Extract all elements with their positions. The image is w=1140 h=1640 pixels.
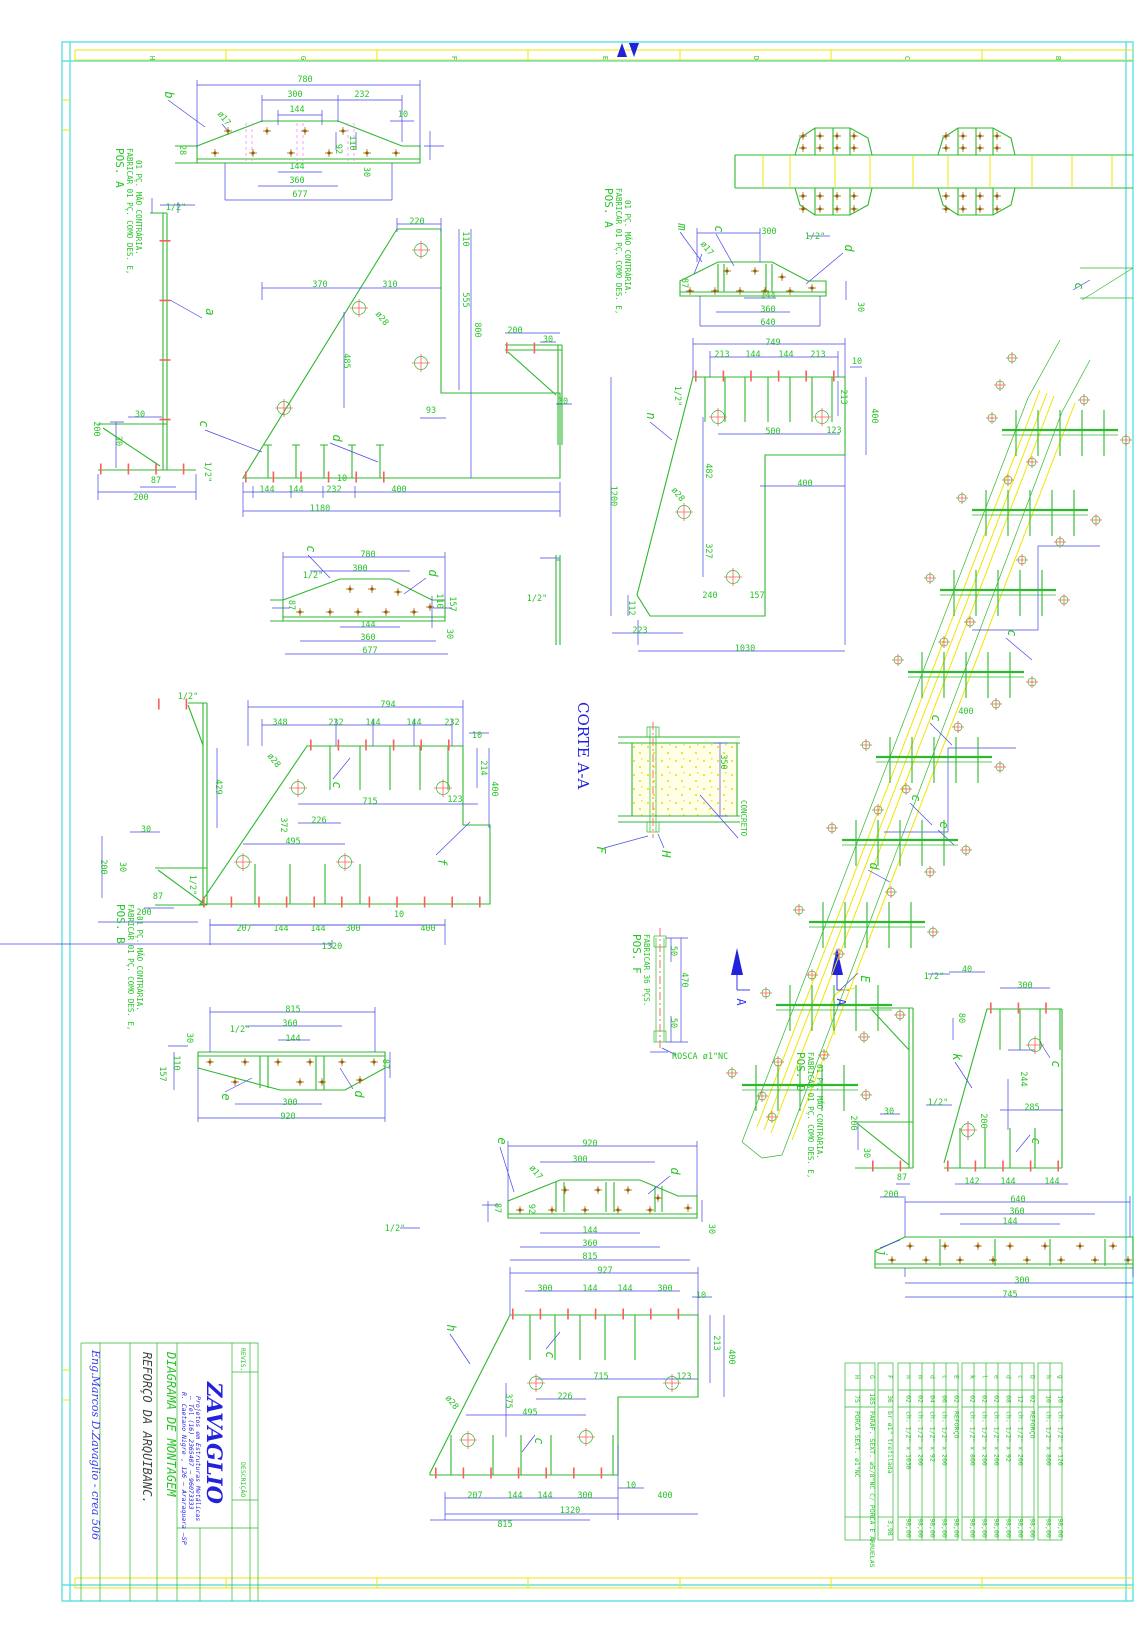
dim-label: 400 — [391, 485, 406, 495]
bolt-icon — [646, 1206, 654, 1214]
dim-label: 213 — [711, 1335, 721, 1350]
part-ref-label: c — [330, 781, 344, 788]
bolt-icon — [516, 1206, 524, 1214]
hole-icon — [709, 408, 727, 426]
table-cell-mark: n — [905, 1375, 913, 1379]
bolt-icon — [976, 192, 984, 200]
dim-label: 30 — [141, 825, 151, 835]
dim-label: 780 — [297, 75, 312, 85]
dim-label: ø28 — [669, 486, 686, 504]
bolt-icon — [296, 1078, 304, 1086]
table-cell-desc: ch. 1/2" x 200 — [993, 1411, 1001, 1466]
dim-label: 715 — [362, 797, 377, 807]
pos-title: POS. B — [114, 904, 127, 944]
dim-label: 360 — [1009, 1207, 1024, 1217]
bolt-icon — [1023, 1256, 1031, 1264]
dim-label: 144 — [289, 162, 304, 172]
dim-label: 144 — [259, 485, 274, 495]
dim-label: ø28 — [265, 752, 282, 770]
bolt-icon — [318, 1078, 326, 1086]
bolt-icon — [249, 149, 257, 157]
dim-label: 1/2" — [166, 203, 186, 213]
table-cell-qty: 36 — [886, 1395, 894, 1403]
bolt-icon — [1124, 1256, 1132, 1264]
dim-label: 1/2" — [527, 594, 547, 604]
hole-icon — [1026, 1036, 1044, 1054]
part-ref-label: f — [435, 858, 449, 866]
dim-label: 360 — [282, 1019, 297, 1029]
dim-label: ø17 — [698, 240, 715, 258]
part-ref-label: c — [712, 225, 726, 232]
bolt-icon — [833, 192, 841, 200]
bolt-icon — [993, 144, 1001, 152]
dim-label: 200 — [883, 1190, 898, 1200]
table-cell-weight: 98,00 — [1005, 1518, 1013, 1538]
dim-label: 200 — [133, 493, 148, 503]
table-cell-qty: 02 — [953, 1395, 961, 1403]
dim-label: ø17 — [527, 1164, 544, 1182]
bolt-icon — [594, 1186, 602, 1194]
bolt-icon — [799, 205, 807, 213]
dim-label: 144 — [360, 620, 375, 630]
pos-title: POS. A — [602, 188, 615, 228]
dim-label: 300 — [345, 924, 360, 934]
part-ref-label: c — [543, 1351, 557, 1358]
dim-label: 213 — [810, 350, 825, 360]
part-ref-label: H — [659, 849, 673, 858]
hole-icon — [459, 1431, 477, 1449]
dim-label: 123 — [447, 795, 462, 805]
dim-label: 110 — [460, 231, 470, 246]
table-cell-weight: 98,00 — [1029, 1518, 1037, 1538]
bolt-icon — [833, 132, 841, 140]
dim-label: 87 — [153, 892, 163, 902]
table-cell-weight: 98,00 — [1045, 1518, 1053, 1538]
bolt-icon — [392, 149, 400, 157]
detail-plate-920 — [400, 1141, 702, 1260]
dim-label: 240 — [702, 591, 717, 601]
part-ref-label: d — [842, 244, 856, 252]
dim-label: 300 — [287, 90, 302, 100]
part-ref-label: e — [495, 1137, 509, 1144]
hole-icon — [724, 568, 742, 586]
pos-note: 01 PÇ. MÃO CONTRÁRIA. — [815, 1064, 824, 1159]
rosca-label: ROSCA ø1"NC — [672, 1052, 728, 1062]
dim-label: 749 — [765, 338, 780, 348]
bolt-icon — [382, 608, 390, 616]
dim-label: 30 — [855, 302, 865, 312]
table-cell-qty: 10 — [1057, 1395, 1065, 1403]
dim-label: 10 — [394, 910, 404, 920]
bolt-icon — [287, 149, 295, 157]
bolt-icon — [959, 205, 967, 213]
dim-label: 93 — [426, 406, 436, 416]
dim-label: 92 — [526, 1204, 536, 1214]
stair-beam — [860, 721, 1006, 795]
part-ref-label: c — [304, 545, 318, 552]
bolt-icon — [614, 1206, 622, 1214]
concreto-label: CONCRETO — [739, 800, 748, 837]
table-cell-qty: 02 — [1029, 1395, 1037, 1403]
dim-label: 640 — [760, 318, 775, 328]
dim-label: 87 — [151, 476, 161, 486]
table-cell-desc: REFORÇO — [953, 1411, 961, 1438]
detail-gusset-n — [611, 338, 866, 651]
table-cell-desc: ch. 1/2" x 200 — [1017, 1411, 1025, 1466]
dim-label: 1/2" — [805, 232, 825, 242]
dim-label: 30 — [184, 1033, 194, 1043]
dim-label: 400 — [797, 479, 812, 489]
bolt-icon — [306, 1058, 314, 1066]
dim-label: 87 — [492, 1203, 502, 1213]
dim-label: 144 — [310, 924, 325, 934]
stair-beam — [793, 886, 939, 960]
table-cell-weight: 3,98 — [886, 1520, 894, 1536]
dim-label: 144 — [273, 924, 288, 934]
dim-label: 40 — [962, 965, 972, 975]
table-cell-qty: 02 — [981, 1395, 989, 1403]
dim-label: 232 — [326, 485, 341, 495]
bolt-icon — [1091, 1256, 1099, 1264]
dim-label: 200 — [507, 326, 522, 336]
dim-label: 10 — [696, 1291, 706, 1301]
bolt-icon — [339, 127, 347, 135]
dim-label: 1180 — [310, 504, 330, 514]
bolt-icon — [426, 603, 434, 611]
dim-label: 745 — [1002, 1290, 1017, 1300]
table-cell-desc: REFORÇO — [1029, 1411, 1037, 1438]
dim-label: 470 — [679, 972, 689, 987]
dim-label: 500 — [765, 427, 780, 437]
bolt-icon — [850, 132, 858, 140]
bolt-icon — [942, 192, 950, 200]
dim-label: 794 — [380, 700, 395, 710]
bolt-icon — [833, 205, 841, 213]
dim-label: 300 — [761, 227, 776, 237]
part-ref-label: d — [668, 1167, 682, 1175]
bolt-icon — [959, 132, 967, 140]
descr-label: DESCRIÇÃO — [239, 1462, 248, 1497]
bolt-icon — [548, 1206, 556, 1214]
bolt-icon — [799, 192, 807, 200]
bolt-icon — [326, 608, 334, 616]
dim-label: 30 — [444, 629, 454, 639]
bolt-icon — [206, 1058, 214, 1066]
dim-label: 780 — [360, 550, 375, 560]
detail-gusset-cd — [205, 218, 560, 517]
part-ref-label: d — [330, 434, 344, 442]
bolt-icon — [370, 1058, 378, 1066]
detail-bottom-right — [855, 972, 1133, 1297]
bolt-icon — [778, 273, 786, 281]
bolt-icon — [1076, 1242, 1084, 1250]
parts-table: H75PORCA SEXT. ø1"NCG185PARAF. SEXT. ø5/… — [845, 1363, 876, 1568]
dim-label: 815 — [497, 1520, 512, 1530]
dim-label: ø28 — [443, 1394, 460, 1412]
grid-letter: F — [450, 56, 458, 60]
dim-label: 244 — [1018, 1071, 1028, 1086]
bolt-icon — [941, 1242, 949, 1250]
bolt-icon — [1006, 1242, 1014, 1250]
bolt-icon — [959, 144, 967, 152]
bolt-icon — [942, 144, 950, 152]
dim-label: 213 — [714, 350, 729, 360]
grid-letter: D — [752, 56, 760, 60]
bolt-icon — [274, 1058, 282, 1066]
dim-label: 144 — [760, 291, 775, 301]
dim-label: 232 — [328, 718, 343, 728]
dim-label: 300 — [282, 1098, 297, 1108]
dim-label: 927 — [597, 1266, 612, 1276]
dim-label: 300 — [572, 1155, 587, 1165]
dim-label: 50 — [668, 946, 678, 956]
dim-label: 920 — [582, 1139, 597, 1149]
drawing-canvas: ZAVAGLIO Projetos em Estruturas Metálica… — [0, 0, 1140, 1640]
bolt-icon — [959, 192, 967, 200]
detail-gusset-794 — [0, 700, 490, 948]
dim-label: 30 — [558, 397, 568, 407]
dim-label: 400 — [657, 1491, 672, 1501]
dim-label: 80 — [956, 1013, 966, 1023]
dim-label: 1/2" — [924, 972, 944, 982]
dim-label: 214 — [478, 760, 488, 775]
part-ref-label: k — [950, 1053, 964, 1061]
part-ref-label: c — [532, 1437, 546, 1444]
bolt-icon — [394, 588, 402, 596]
table-cell-mark: c — [1017, 1375, 1025, 1379]
dim-label: 815 — [582, 1252, 597, 1262]
hole-icon — [412, 354, 430, 372]
table-cell-weight: 98,00 — [941, 1518, 949, 1538]
hole-icon — [289, 779, 307, 797]
parts-table: k02ch. 1/2" x 80098,00l02ch. 1/2" x 2009… — [962, 1363, 1037, 1540]
dim-label: 144 — [582, 1226, 597, 1236]
hole-icon — [577, 1428, 595, 1446]
dim-label: 715 — [593, 1372, 608, 1382]
bolt-icon — [888, 1256, 896, 1264]
part-ref-label: a — [203, 308, 217, 315]
dim-label: 30 — [113, 436, 123, 446]
table-cell-desc: PARAF. SEXT. ø5/8"NC C/ PORCA E ARRUELAS — [868, 1411, 876, 1568]
bolt-icon — [976, 205, 984, 213]
dim-label: 157 — [157, 1066, 167, 1081]
part-ref-label: e — [937, 821, 951, 828]
bolt-icon — [346, 585, 354, 593]
part-ref-label: c — [1029, 1137, 1043, 1144]
dim-label: 30 — [706, 1224, 716, 1234]
dim-label: 30 — [361, 167, 371, 177]
dim-label: 144 — [1000, 1177, 1015, 1187]
table-cell-mark: c — [941, 1375, 949, 1379]
bolt-icon — [942, 205, 950, 213]
dim-label: 370 — [312, 280, 327, 290]
bolt-icon — [816, 205, 824, 213]
dim-label: 300 — [1017, 981, 1032, 991]
dim-label: 30 — [543, 335, 553, 345]
dim-label: 10 — [337, 474, 347, 484]
pos-note: FABRICAR 01 PÇ. COMO DES. E, — [806, 1052, 815, 1178]
bolt-icon — [684, 1204, 692, 1212]
dim-label: 300 — [352, 564, 367, 574]
dim-label: 400 — [420, 924, 435, 934]
dim-label: 144 — [285, 1034, 300, 1044]
bolt-icon — [922, 1256, 930, 1264]
dim-label: 300 — [537, 1284, 552, 1294]
bolt-icon — [241, 1058, 249, 1066]
dim-label: 300 — [577, 1491, 592, 1501]
table-cell-mark: E — [953, 1375, 961, 1379]
dim-label: 1/2" — [202, 462, 212, 482]
bolt-icon — [368, 585, 376, 593]
bolt-icon — [833, 144, 841, 152]
table-cell-qty: 02 — [917, 1395, 925, 1403]
dim-label: 110 — [434, 593, 444, 608]
dim-label: 223 — [632, 626, 647, 636]
dim-label: 144 — [537, 1491, 552, 1501]
dim-label: 495 — [285, 837, 300, 847]
hole-icon — [412, 241, 430, 259]
dim-label: 213 — [838, 389, 848, 404]
hole-icon — [813, 408, 831, 426]
dim-label: 400 — [726, 1349, 736, 1364]
dim-label: 360 — [360, 633, 375, 643]
bolt-icon — [799, 144, 807, 152]
bolt-icon — [410, 608, 418, 616]
dim-label: 375 — [503, 1393, 513, 1408]
bolt-icon — [850, 144, 858, 152]
pos-note: 01 PÇ. MÃO CONTRÁRIA. — [135, 916, 144, 1011]
parts-table: F36br ø1" trefilada3,98 — [878, 1363, 894, 1540]
bolt-icon — [976, 132, 984, 140]
dim-label: 157 — [447, 596, 457, 611]
pos-note: FABRICAR 01 PÇ. COMO DES. E, — [614, 188, 623, 314]
bolt-icon — [325, 149, 333, 157]
dim-label: 400 — [869, 408, 879, 423]
dim-label: 200 — [848, 1115, 858, 1130]
dim-label: 200 — [91, 421, 101, 436]
table-cell-desc: ch. 1/2" x 120 — [1057, 1411, 1065, 1466]
dim-label: 144 — [1044, 1177, 1059, 1187]
table-cell-qty: 08 — [1005, 1395, 1013, 1403]
table-cell-desc: ch. 1/2" x 800 — [969, 1411, 977, 1466]
dim-label: 123 — [826, 426, 841, 436]
bolt-icon — [906, 1242, 914, 1250]
dim-label: 360 — [582, 1239, 597, 1249]
dim-label: 429 — [213, 779, 223, 794]
dim-label: 360 — [760, 305, 775, 315]
table-cell-weight: 98,00 — [917, 1518, 925, 1538]
dim-label: 144 — [507, 1491, 522, 1501]
company-name: ZAVAGLIO — [202, 1381, 227, 1505]
stair-beam — [924, 554, 1070, 628]
parts-table: h10ch. 1/2" x 80098,00g10ch. 1/2" x 1209… — [1038, 1363, 1065, 1540]
dim-label: 482 — [703, 463, 713, 478]
doc-subject: REFORÇO DA ARQUIBANC. — [140, 1352, 154, 1504]
dim-label: 485 — [341, 353, 351, 368]
dim-label: 1/2" — [303, 571, 323, 581]
bolt-icon — [974, 1242, 982, 1250]
bolt-icon — [751, 267, 759, 275]
dim-label: 110 — [171, 1055, 181, 1070]
bolt-icon — [816, 192, 824, 200]
dim-label: 30 — [135, 410, 145, 420]
bolt-icon — [1057, 1256, 1065, 1264]
cad-sheet: ZAVAGLIO Projetos em Estruturas Metálica… — [0, 0, 1140, 1640]
corte-title: CORTE A-A — [574, 702, 592, 789]
dim-label: 1320 — [560, 1506, 580, 1516]
dim-label: 30 — [861, 1148, 871, 1158]
table-cell-weight: 98,00 — [953, 1518, 961, 1538]
hole-icon — [234, 853, 252, 871]
bolt-icon — [816, 132, 824, 140]
bolt-icon — [1109, 1242, 1117, 1250]
dim-label: 207 — [467, 1491, 482, 1501]
part-ref-label: h — [444, 1324, 458, 1331]
table-cell-desc: ch. 1/2" x 200 — [917, 1411, 925, 1466]
hole-icon — [959, 1121, 977, 1139]
table-cell-desc: ch. 1/2" x 200 — [941, 1411, 949, 1466]
dim-label: 232 — [444, 718, 459, 728]
part-ref-label: F — [594, 846, 608, 854]
dim-label: 920 — [280, 1112, 295, 1122]
stair-structure — [742, 268, 1133, 1158]
company-addr3: R. Caetano Nigre , 126 — Araraquara —SP — [180, 1392, 188, 1545]
dim-label: 1320 — [322, 942, 342, 952]
pos-note: 01 PÇ. MÃO CONTRÁRIA. — [134, 160, 143, 255]
dim-label: 1/2" — [928, 1098, 948, 1108]
table-cell-desc: ch. 1/2" x 1030 — [905, 1411, 913, 1470]
bolt-icon — [989, 1256, 997, 1264]
table-cell-desc: ch. 1/2" x 92 — [1005, 1411, 1013, 1462]
dim-label: 555 — [460, 292, 470, 307]
beam-plan-top-right — [735, 128, 1133, 215]
dim-label: 10 — [852, 357, 862, 367]
dim-label: ø28 — [373, 310, 390, 328]
hole-icon — [336, 853, 354, 871]
dim-label: 144 — [288, 485, 303, 495]
dim-label: 144 — [289, 105, 304, 115]
dim-label: 30 — [884, 1107, 894, 1117]
detail-plate-b — [168, 80, 444, 200]
hole-icon — [350, 299, 368, 317]
dim-label: 87 — [679, 278, 689, 288]
table-cell-mark: d — [1005, 1375, 1013, 1379]
dim-label: 327 — [703, 543, 713, 558]
section-arrow-a — [731, 948, 850, 990]
bolt-icon — [1041, 1242, 1049, 1250]
part-ref-label: n — [644, 412, 658, 419]
dim-label: 800 — [472, 322, 482, 337]
dim-label: 677 — [362, 646, 377, 656]
dim-label: 30 — [117, 862, 127, 872]
bolt-icon — [354, 608, 362, 616]
part-ref-label: c — [1072, 282, 1086, 289]
dim-label: 144 — [778, 350, 793, 360]
pos-title: POS. F — [630, 934, 643, 974]
bolt-icon — [993, 192, 1001, 200]
grid-letter: H — [148, 56, 156, 60]
dim-label: 28 — [177, 145, 187, 155]
dim-label: 123 — [676, 1372, 691, 1382]
dim-label: ø17 — [215, 110, 232, 128]
table-cell-qty: 02 — [905, 1395, 913, 1403]
table-cell-qty: 06 — [941, 1395, 949, 1403]
dim-label: 87 — [897, 1173, 907, 1183]
table-cell-mark: D — [1029, 1375, 1037, 1379]
pos-title: POS. A — [113, 148, 126, 188]
stair-beam — [956, 474, 1102, 548]
part-ref-label: c — [197, 420, 211, 427]
